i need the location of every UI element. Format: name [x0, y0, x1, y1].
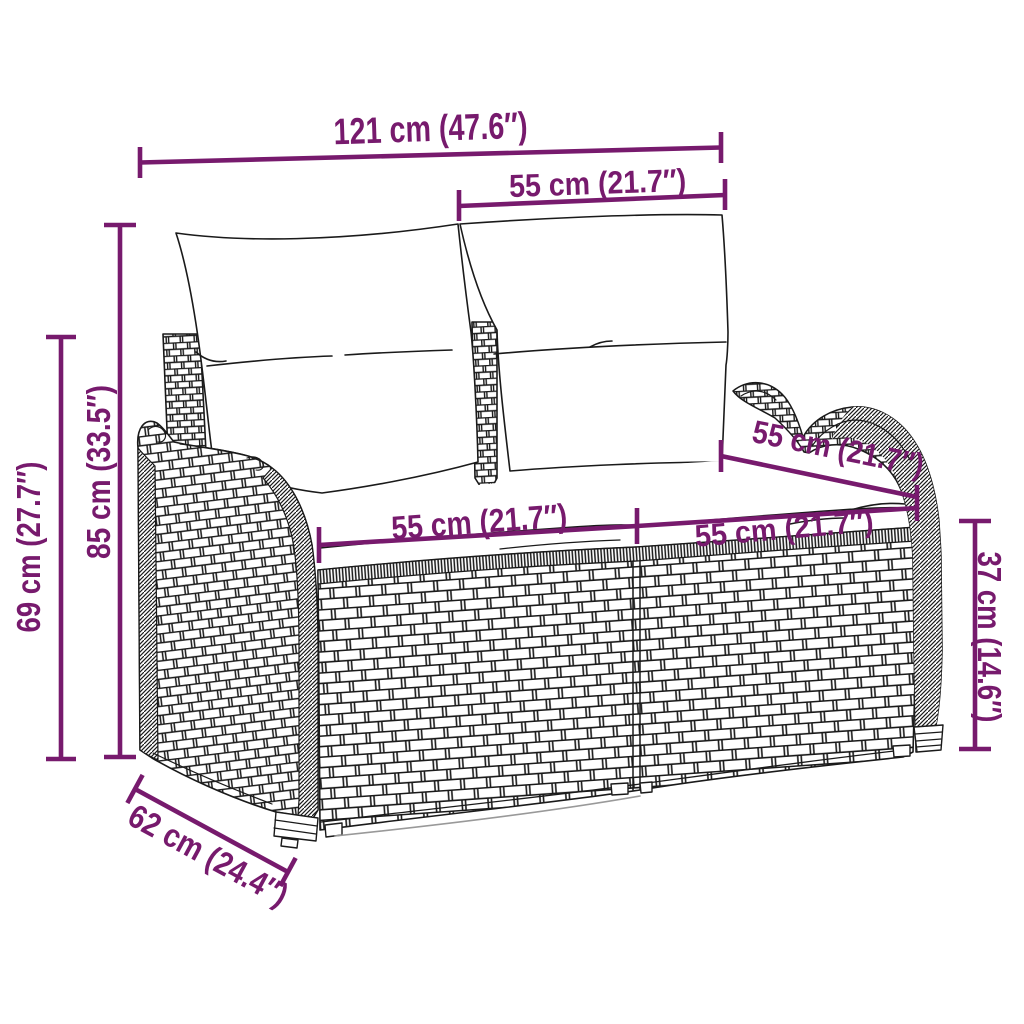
svg-text:121 cm (47.6″): 121 cm (47.6″): [333, 105, 528, 153]
svg-text:37 cm (14.6″): 37 cm (14.6″): [971, 552, 1008, 723]
svg-text:69 cm (27.7″): 69 cm (27.7″): [10, 462, 47, 633]
svg-text:55 cm (21.7″): 55 cm (21.7″): [509, 162, 687, 204]
svg-text:85 cm (33.5″): 85 cm (33.5″): [80, 385, 117, 559]
